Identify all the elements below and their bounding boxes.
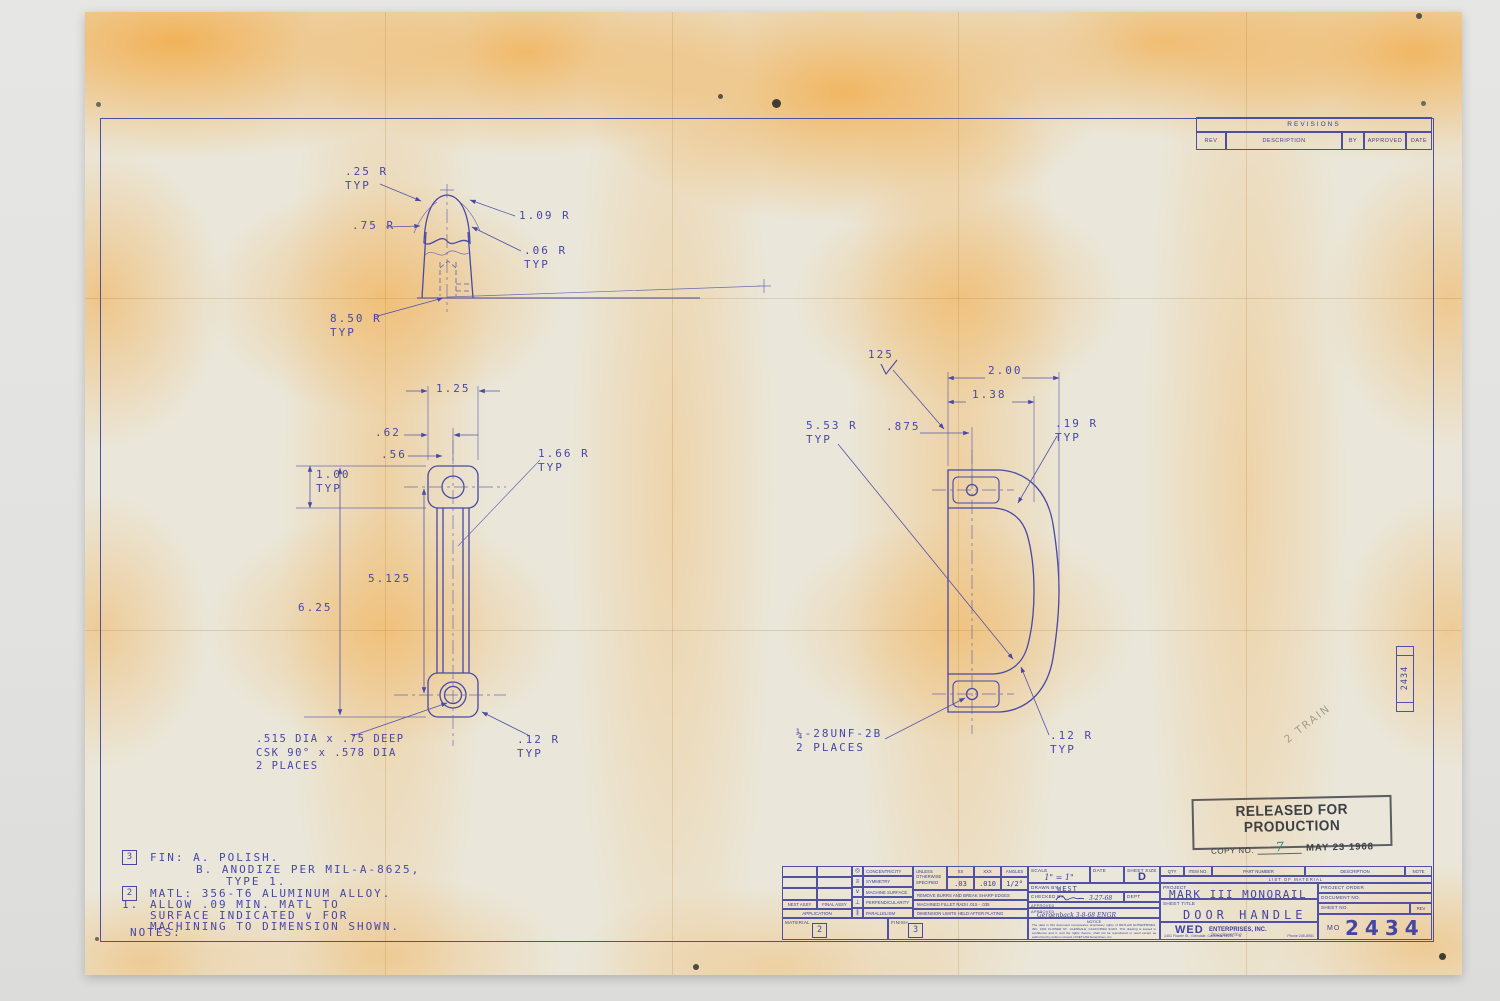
- description-header: DESCRIPTION: [1305, 866, 1405, 876]
- dim-label-138: 1.38: [972, 388, 1007, 402]
- finish-mark-label: 125: [868, 348, 894, 362]
- dept-cell: DEPT: [1124, 892, 1160, 902]
- dim-label-r166: 1.66 R TYP: [538, 447, 590, 476]
- dim-label-r12-side: .12 R TYP: [1050, 729, 1093, 758]
- checked-date: 3-27-68: [1089, 895, 1112, 902]
- edge-number-label: 2434: [1400, 654, 1410, 702]
- hole-callout: .515 DIA x .75 DEEP CSK 90° x .578 DIA 2…: [256, 733, 405, 774]
- checked-signature: [1055, 894, 1085, 902]
- checked-cell: CHECKED BY 3-27-68: [1028, 892, 1124, 902]
- application-header: APPLICATION: [782, 909, 852, 918]
- tol-col-xx: XX: [947, 866, 974, 877]
- machine-surface-icon: ∨: [852, 887, 863, 897]
- list-of-material-title: LIST OF MATERIAL: [1160, 876, 1432, 883]
- staple-dot: [1416, 13, 1422, 19]
- scale-value: 1" = 1": [1029, 873, 1089, 882]
- side-view: [838, 360, 1059, 739]
- photo-background: .25 R TYP .75 R 1.09 R .06 R TYP 8.50 R …: [0, 0, 1500, 1001]
- stamp-copy-label: COPY NO.: [1211, 846, 1254, 856]
- tol-row-fillet: MACHINED FILLET RADII .015 - .035: [913, 900, 1028, 909]
- doc-number-cell: MO 2434: [1318, 914, 1432, 940]
- perpendicularity-icon: ⊥: [852, 897, 863, 908]
- stamp-date: MAY 23 1968: [1306, 841, 1374, 853]
- symbol-label-parallelism: PARALLELISM: [863, 908, 913, 918]
- concentricity-icon: ◎: [852, 866, 863, 876]
- date-cell: DATE: [1090, 866, 1124, 883]
- staple-dot: [772, 99, 781, 108]
- app-cell: [782, 866, 817, 877]
- dim-label-5125: 5.125: [368, 572, 411, 586]
- revisions-col-description: DESCRIPTION: [1226, 132, 1342, 150]
- sheet-size-value: D: [1125, 871, 1159, 883]
- tol-row-burrs: REMOVE BURRS AND BREAK SHARP EDGES: [913, 890, 1028, 900]
- stamp-title: RELEASED FOR PRODUCTION: [1199, 801, 1384, 837]
- finish-flag: 3: [908, 923, 923, 938]
- document-no-label: DOCUMENT NO.: [1321, 895, 1361, 900]
- approved-cell-2: APPROVED Gergenback 3-8-68 ENGR: [1028, 908, 1160, 918]
- app-cell: [782, 888, 817, 900]
- thread-callout: ¼-28UNF-2B 2 PLACES: [796, 727, 882, 756]
- dim-label-125: 1.25: [436, 382, 471, 396]
- company-phone: Phone 245-8951: [1287, 934, 1314, 938]
- symmetry-icon: ≡: [852, 876, 863, 887]
- rev-cell: REV: [1410, 903, 1432, 914]
- doc-number-prefix: MO: [1327, 925, 1340, 932]
- dim-label-625: 6.25: [298, 601, 333, 615]
- date-label: DATE: [1093, 868, 1106, 873]
- project-order-label: PROJECT ORDER: [1321, 885, 1364, 890]
- tol-col-xxx: XXX: [974, 866, 1001, 877]
- sheet-title-value: DOOR HANDLE: [1183, 908, 1306, 922]
- symbol-label-machine-surface: MACHINE SURFACE: [863, 887, 913, 897]
- staple-dot: [1439, 953, 1446, 960]
- note-flag-3: 3: [122, 850, 137, 865]
- dim-label-200: 2.00: [988, 364, 1023, 378]
- tol-val-angles: 1/2°: [1001, 877, 1028, 890]
- dim-label-r850: 8.50 R TYP: [330, 312, 382, 341]
- notice-body: The data in this document incorporates p…: [1029, 924, 1159, 939]
- app-cell: [782, 877, 817, 888]
- dim-label-r75: .75 R: [352, 219, 395, 233]
- document-no-cell: DOCUMENT NO.: [1318, 893, 1432, 903]
- note-num-1: 1.: [122, 898, 139, 912]
- parallelism-icon: ∥: [852, 908, 863, 918]
- project-cell: PROJECT MARK III MONORAIL: [1160, 883, 1318, 899]
- app-cell: [817, 877, 852, 888]
- revisions-col-rev: REV: [1196, 132, 1226, 150]
- notes-header: NOTES:: [130, 926, 182, 940]
- tol-col-angles: ANGLES: [1001, 866, 1028, 877]
- revisions-title: REVISIONS: [1196, 117, 1432, 132]
- notice-cell: NOTICE The data in this document incorpo…: [1028, 918, 1160, 940]
- dim-label-875: .875: [886, 420, 921, 434]
- finish-label: FINISH: [891, 920, 908, 925]
- sheet-no-cell: SHEET NO.: [1318, 903, 1410, 914]
- revisions-col-date: DATE: [1406, 132, 1432, 150]
- sheet-size-cell: SHEET SIZE D: [1124, 866, 1160, 883]
- note-line-machining: MACHINING TO DIMENSION SHOWN.: [150, 920, 400, 934]
- item-no-header: ITEM NO.: [1184, 866, 1212, 876]
- drawn-cell: DRAWN BY WEST: [1028, 883, 1160, 892]
- punch-hole: [1421, 101, 1426, 106]
- material-cell: MATERIAL: [782, 918, 888, 940]
- app-cell: [817, 888, 852, 900]
- staple-dot: [693, 964, 699, 970]
- revisions-col-by: BY: [1342, 132, 1364, 150]
- qty-header: QTY: [1160, 866, 1184, 876]
- symbol-label-symmetry: SYMMETRY: [863, 876, 913, 887]
- company-cell: WED ENTERPRISES, INC. Imagineering 1401 …: [1160, 922, 1318, 940]
- app-cell: [817, 866, 852, 877]
- dim-label-56: .56: [381, 448, 407, 462]
- material-label: MATERIAL: [785, 920, 810, 925]
- dim-label-r06: .06 R TYP: [524, 244, 567, 273]
- tolerance-header: UNLESS OTHERWISE SPECIFIED: [913, 866, 947, 890]
- dept-label: DEPT: [1127, 894, 1140, 899]
- sheet-no-label: SHEET NO.: [1321, 905, 1348, 910]
- project-order-cell: PROJECT ORDER: [1318, 883, 1432, 893]
- released-stamp: RELEASED FOR PRODUCTION COPY NO. 7 MAY 2…: [1191, 795, 1392, 850]
- section-view: [374, 184, 771, 317]
- edge-number-tag: 2434: [1396, 646, 1414, 712]
- front-view: [296, 386, 540, 746]
- sheet-title-cell: SHEET TITLE DOOR HANDLE: [1160, 899, 1318, 922]
- note-header: NOTE: [1405, 866, 1432, 876]
- sheet-title-label: SHEET TITLE: [1163, 901, 1195, 906]
- final-assy-header: FINAL ASSY: [817, 900, 852, 909]
- dim-label-r553: 5.53 R TYP: [806, 419, 858, 448]
- part-number-header: PART NUMBER: [1212, 866, 1305, 876]
- dim-label-r19: .19 R TYP: [1055, 417, 1098, 446]
- tol-row-plating: DIMENSION LIMITS HELD AFTER PLATING: [913, 909, 1028, 918]
- revisions-col-approved: APPROVED: [1364, 132, 1406, 150]
- company-address: 1401 Flower St., Glendale, California 91…: [1164, 934, 1234, 938]
- dim-label-100typ: 1.00 TYP: [316, 468, 351, 497]
- dim-label-r109: 1.09 R: [519, 209, 571, 223]
- next-assy-header: NEXT ASSY: [782, 900, 817, 909]
- revisions-block: REVISIONS REV DESCRIPTION BY APPROVED DA…: [1196, 117, 1432, 152]
- symbol-label-concentricity: CONCENTRICITY: [863, 866, 913, 876]
- dim-label-r25: .25 R TYP: [345, 165, 388, 194]
- tol-val-xxx: .010: [974, 877, 1001, 890]
- stamp-copy-number: 7: [1275, 840, 1284, 855]
- symbol-label-perpendicularity: PERPENDICULARITY: [863, 897, 913, 908]
- punch-hole: [95, 937, 99, 941]
- tol-val-xx: .03: [947, 877, 974, 890]
- doc-number-value: 2434: [1345, 916, 1425, 940]
- material-flag: 2: [812, 923, 827, 938]
- edge-tag-segment: [1397, 702, 1413, 711]
- punch-hole: [96, 102, 101, 107]
- drawn-label: DRAWN BY: [1031, 885, 1058, 890]
- scale-cell: SCALE 1" = 1": [1028, 866, 1090, 883]
- staple-dot: [718, 94, 723, 99]
- dim-label-62: .62: [375, 426, 401, 440]
- dim-label-r12-front: .12 R TYP: [517, 733, 560, 762]
